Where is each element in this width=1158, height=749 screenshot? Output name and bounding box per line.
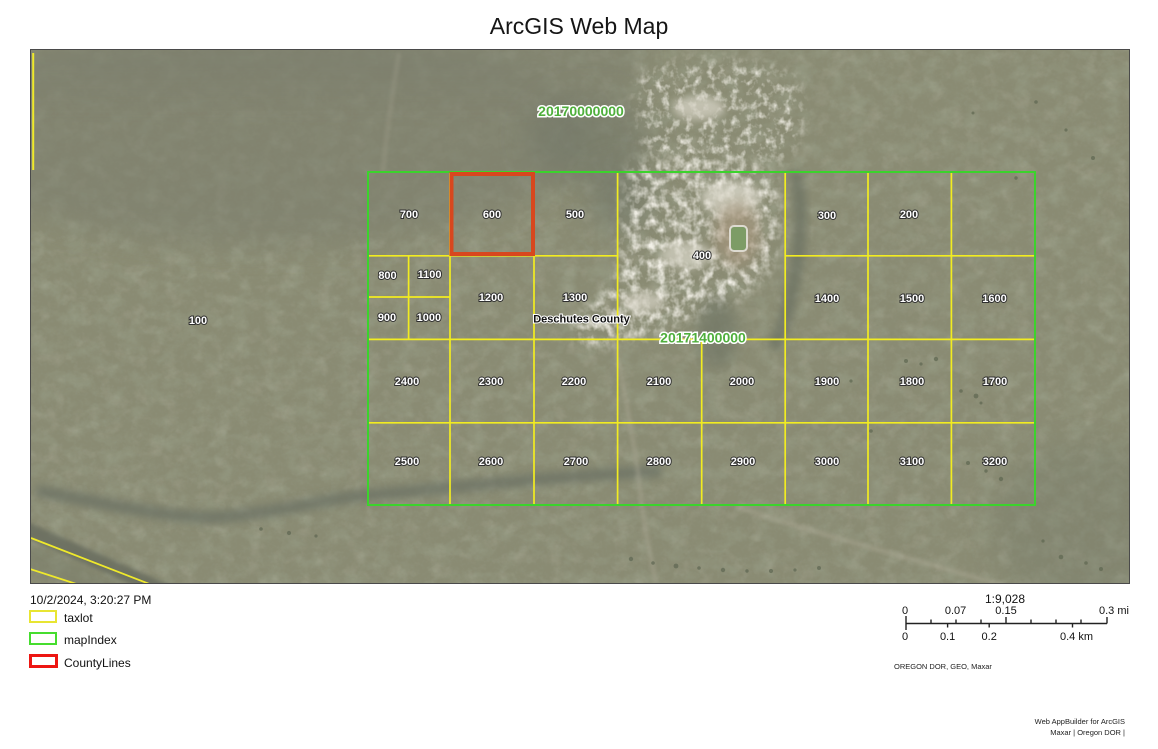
- svg-text:0.1: 0.1: [940, 631, 955, 643]
- svg-text:2500: 2500: [395, 456, 419, 468]
- svg-text:1700: 1700: [983, 376, 1007, 388]
- svg-text:2800: 2800: [647, 456, 671, 468]
- svg-text:2600: 2600: [479, 456, 503, 468]
- svg-text:2000: 2000: [730, 376, 754, 388]
- svg-text:1100: 1100: [418, 269, 442, 281]
- svg-text:20171400000: 20171400000: [660, 330, 746, 346]
- svg-text:300: 300: [818, 210, 836, 222]
- svg-text:2100: 2100: [647, 376, 671, 388]
- svg-text:500: 500: [566, 209, 584, 221]
- svg-text:0.07: 0.07: [945, 605, 966, 617]
- svg-text:1600: 1600: [982, 293, 1006, 305]
- svg-text:1400: 1400: [815, 293, 839, 305]
- svg-text:20170000000: 20170000000: [538, 103, 624, 119]
- svg-text:0: 0: [902, 605, 908, 617]
- svg-text:800: 800: [378, 270, 396, 282]
- svg-text:0.3 mi: 0.3 mi: [1099, 605, 1129, 617]
- svg-text:2900: 2900: [731, 456, 755, 468]
- svg-text:0: 0: [902, 631, 908, 643]
- svg-text:1500: 1500: [900, 293, 924, 305]
- svg-text:400: 400: [693, 250, 711, 262]
- svg-text:200: 200: [900, 209, 918, 221]
- svg-text:0.2: 0.2: [982, 631, 997, 643]
- svg-text:1200: 1200: [479, 292, 503, 304]
- svg-text:3100: 3100: [900, 456, 924, 468]
- svg-text:Deschutes County: Deschutes County: [533, 314, 630, 326]
- svg-text:600: 600: [483, 209, 501, 221]
- svg-text:1300: 1300: [563, 292, 587, 304]
- svg-text:2300: 2300: [479, 376, 503, 388]
- svg-text:900: 900: [378, 312, 396, 324]
- svg-text:3000: 3000: [815, 456, 839, 468]
- svg-text:2400: 2400: [395, 376, 419, 388]
- svg-text:2700: 2700: [564, 456, 588, 468]
- svg-text:1000: 1000: [417, 312, 441, 324]
- svg-text:2200: 2200: [562, 376, 586, 388]
- svg-text:0.15: 0.15: [995, 605, 1016, 617]
- svg-text:100: 100: [189, 315, 207, 327]
- svg-text:700: 700: [400, 209, 418, 221]
- svg-text:1900: 1900: [815, 376, 839, 388]
- svg-text:0.4 km: 0.4 km: [1060, 631, 1093, 643]
- svg-text:3200: 3200: [983, 456, 1007, 468]
- svg-text:1800: 1800: [900, 376, 924, 388]
